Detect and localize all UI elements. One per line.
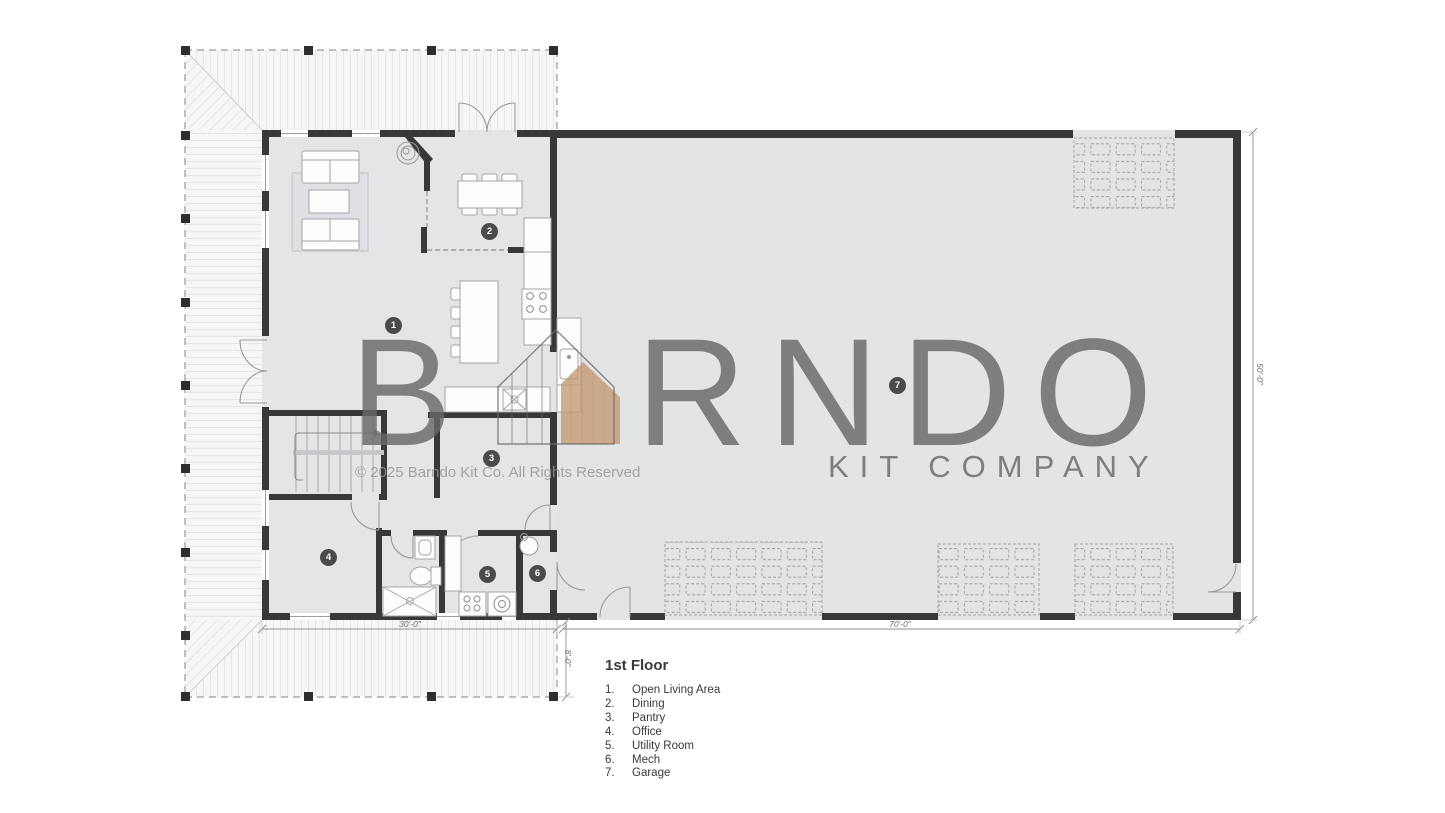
vanity	[415, 536, 435, 559]
toilet	[410, 567, 432, 585]
legend-item-number: 5.	[605, 740, 632, 754]
floorplan-drawing	[0, 0, 1445, 813]
floorplan-page: B RNDO KIT COMPANY © 2025 Barndo Kit Co.…	[0, 0, 1445, 813]
bar-stool	[451, 326, 460, 338]
legend-item-label: Mech	[632, 754, 660, 768]
dim-porch-depth: 8'-0"	[563, 636, 573, 680]
legend-item: 7. Garage	[605, 767, 720, 781]
room-badge-utility: 5	[479, 566, 496, 583]
bar-stool	[451, 288, 460, 300]
water-heater	[520, 537, 538, 555]
legend-item-number: 3.	[605, 712, 632, 726]
kitchen-counter-south	[445, 387, 550, 412]
room-badge-pantry: 3	[483, 450, 500, 467]
legend-item-number: 4.	[605, 726, 632, 740]
legend-item: 6. Mech	[605, 754, 720, 768]
garage-door-north	[1074, 138, 1174, 208]
range	[522, 289, 551, 319]
legend-item-number: 1.	[605, 684, 632, 698]
dim-garage-width: 70'-0"	[870, 619, 930, 629]
legend-item-label: Dining	[632, 698, 665, 712]
garage-door-south-mid	[938, 544, 1039, 615]
legend-item-label: Utility Room	[632, 740, 694, 754]
dim-living-width: 30'-0"	[380, 619, 440, 629]
garage-door-south-right	[1075, 544, 1173, 615]
legend-item: 5. Utility Room	[605, 740, 720, 754]
dim-building-depth: 50'-0"	[1255, 352, 1265, 396]
kitchen-island	[460, 281, 498, 363]
toilet-tank	[431, 567, 441, 585]
room-badge-mech: 6	[529, 565, 546, 582]
legend-item: 4. Office	[605, 726, 720, 740]
legend-item-label: Garage	[632, 767, 670, 781]
legend-item: 1. Open Living Area	[605, 684, 720, 698]
room-badge-living: 1	[385, 317, 402, 334]
kitchen-counter	[524, 218, 551, 289]
room-badge-garage: 7	[889, 377, 906, 394]
bar-stool	[451, 307, 460, 319]
living-room-furniture	[292, 151, 368, 251]
nook-sink	[560, 349, 578, 379]
legend-item-label: Office	[632, 726, 662, 740]
bar-stool	[451, 345, 460, 357]
room-badge-office: 4	[320, 549, 337, 566]
legend-item-number: 6.	[605, 754, 632, 768]
legend-item-number: 2.	[605, 698, 632, 712]
legend-item: 3. Pantry	[605, 712, 720, 726]
legend-item-number: 7.	[605, 767, 632, 781]
dining-furniture	[458, 174, 522, 215]
utility-counter	[445, 536, 461, 591]
garage-door-south-large	[665, 542, 822, 615]
coffee-table	[309, 190, 349, 213]
washer	[459, 592, 486, 616]
legend-title: 1st Floor	[605, 657, 720, 674]
room-badge-dining: 2	[481, 223, 498, 240]
legend-item-label: Open Living Area	[632, 684, 720, 698]
legend-item: 2. Dining	[605, 698, 720, 712]
dining-table	[458, 181, 522, 208]
floor-legend: 1st Floor 1. Open Living Area 2. Dining …	[605, 657, 720, 781]
legend-item-label: Pantry	[632, 712, 665, 726]
